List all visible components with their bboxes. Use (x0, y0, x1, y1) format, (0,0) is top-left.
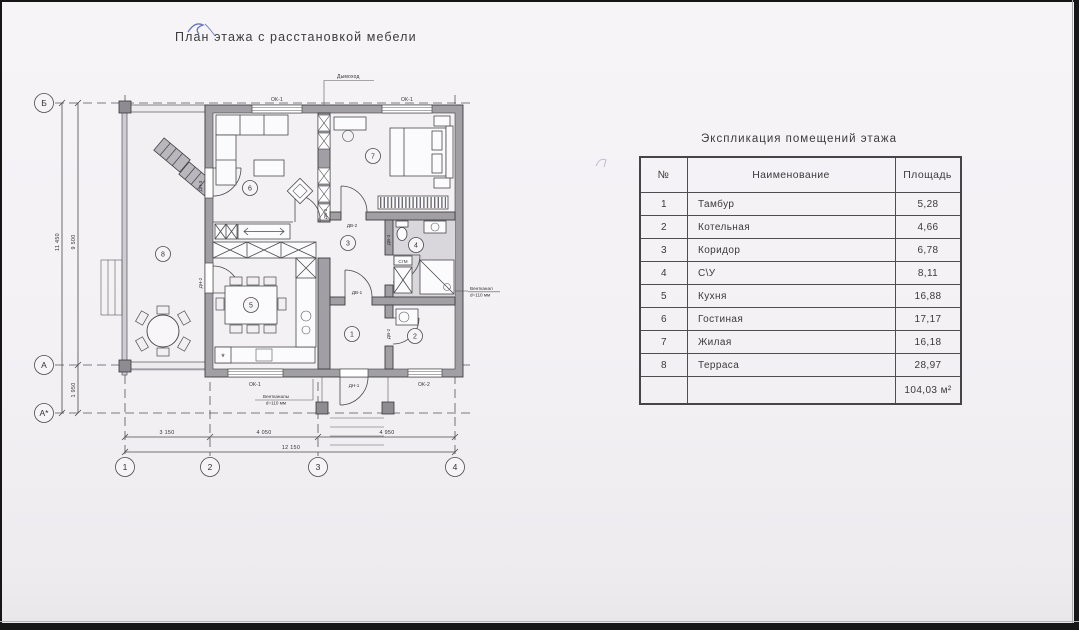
scan-edge-top (0, 0, 1079, 2)
total-empty-num (640, 377, 688, 405)
vent-left-label-2: d=110 мм (266, 401, 286, 406)
pen-scribble-2 (205, 24, 215, 36)
room-area: 8,11 (896, 262, 962, 285)
col-header-name: Наименование (688, 157, 896, 193)
room-num: 7 (640, 331, 688, 354)
room-number-2: 2 (413, 334, 417, 341)
door-label-dv2-living: ДВ-2 (323, 208, 328, 219)
room-num: 2 (640, 216, 688, 239)
explication: Экспликация помещений этажа № Наименован… (639, 133, 959, 405)
room-number-5: 5 (249, 303, 253, 310)
dim-left-2: 1 950 (71, 383, 77, 398)
col-header-area: Площадь (896, 157, 962, 193)
door-label-dv1: ДВ-1 (352, 290, 363, 295)
scan-edge-left (0, 0, 2, 630)
axis-row-a-star: А* (40, 408, 50, 418)
room-area: 16,88 (896, 285, 962, 308)
window-label-ok1-bottom: ОК-1 (249, 382, 261, 388)
scan-edge-line-right (1072, 0, 1073, 630)
room-num: 5 (640, 285, 688, 308)
room-name: Котельная (688, 216, 896, 239)
table-row: 7 Жилая 16,18 (640, 331, 961, 354)
room-area: 16,18 (896, 331, 962, 354)
room-num: 1 (640, 193, 688, 216)
room-area: 4,66 (896, 216, 962, 239)
vent-left-label-1: Вентканалы (263, 394, 289, 399)
door-label-dv2-bedroom: ДВ-2 (347, 223, 358, 228)
room-number-4: 4 (414, 243, 418, 250)
room-number-1: 1 (350, 332, 354, 339)
room-name: Терраса (688, 354, 896, 377)
col-header-num: № (640, 157, 688, 193)
scan-edge-right (1074, 0, 1079, 630)
table-row: 8 Терраса 28,97 (640, 354, 961, 377)
table-row: 6 Гостиная 17,17 (640, 308, 961, 331)
floor-plan: ОК-1 ОК-1 ОК-1 ОК-2 ДВ-1 ДВ-2 ДВ-2 ДВ-2 … (0, 0, 620, 500)
room-num: 6 (640, 308, 688, 331)
door-label-dn3-terrace: ДН-3 (198, 180, 203, 191)
scan-edge-bottom (0, 623, 1079, 630)
scanned-floor-plan-page: План этажа с расстановкой мебели (0, 0, 1079, 630)
window-label-ok1-top-right: ОК-1 (401, 97, 413, 103)
total-area: 104,03 м² (896, 377, 962, 405)
room-name: Кухня (688, 285, 896, 308)
window-label-ok1-top-left: ОК-1 (271, 97, 283, 103)
explication-table: № Наименование Площадь 1 Тамбур 5,28 2 К… (639, 156, 962, 405)
terrace (101, 101, 215, 375)
dim-bottom-total: 12 150 (282, 445, 300, 451)
boiler-room-equipment (396, 309, 418, 325)
table-header-row: № Наименование Площадь (640, 157, 961, 193)
door-label-dv3-bath: ДВ-3 (386, 234, 391, 245)
window-label-ok2-bottom: ОК-2 (418, 382, 430, 388)
dim-bottom-3: 4 950 (380, 430, 395, 436)
dim-left-1: 9 500 (71, 235, 77, 250)
room-num: 3 (640, 239, 688, 262)
table-row: 5 Кухня 16,88 (640, 285, 961, 308)
room-area: 17,17 (896, 308, 962, 331)
dim-bottom-1: 3 150 (160, 430, 175, 436)
door-label-dn2-terrace: ДН-2 (198, 277, 203, 288)
room-area: 6,78 (896, 239, 962, 262)
room-name: Тамбур (688, 193, 896, 216)
table-row: 3 Коридор 6,78 (640, 239, 961, 262)
room-area: 5,28 (896, 193, 962, 216)
room-name: Жилая (688, 331, 896, 354)
room-area: 28,97 (896, 354, 962, 377)
room-number-7: 7 (371, 154, 375, 161)
terrace-steps (101, 260, 122, 315)
explication-title: Экспликация помещений этажа (639, 133, 959, 145)
vent-right-label-2: d=110 мм (470, 293, 490, 298)
room-number-3: 3 (346, 241, 350, 248)
room-number-8: 8 (161, 252, 165, 259)
axis-col-2: 2 (208, 462, 213, 472)
table-row: 4 С\У 8,11 (640, 262, 961, 285)
door-label-dn1-entrance: ДН-1 (349, 383, 360, 388)
axis-col-4: 4 (453, 462, 458, 472)
floor-plan-area: ОК-1 ОК-1 ОК-1 ОК-2 ДВ-1 ДВ-2 ДВ-2 ДВ-2 … (0, 0, 620, 505)
axis-row-a: А (41, 360, 47, 370)
pen-mark (596, 159, 606, 167)
table-row: 2 Котельная 4,66 (640, 216, 961, 239)
room-num: 4 (640, 262, 688, 285)
axis-row-b: Б (41, 98, 47, 108)
pen-scribble (188, 24, 203, 34)
room-num: 8 (640, 354, 688, 377)
room-name: С\У (688, 262, 896, 285)
dim-bottom-2: 4 050 (257, 430, 272, 436)
table-row: 1 Тамбур 5,28 (640, 193, 961, 216)
room-number-6: 6 (248, 186, 252, 193)
scan-edge-line-bottom (0, 621, 1079, 622)
room-name: Гостиная (688, 308, 896, 331)
washer-label: СтМ (398, 259, 407, 264)
vent-right-label-1: Вентканал (470, 286, 493, 291)
chimney-label: Дымоход (337, 74, 360, 80)
door-label-dv2-boiler: ДВ-2 (386, 328, 391, 339)
axis-col-3: 3 (316, 462, 321, 472)
axis-col-1: 1 (123, 462, 128, 472)
table-total-row: 104,03 м² (640, 377, 961, 405)
total-empty-name (688, 377, 896, 405)
dim-left-total: 11 450 (55, 233, 61, 251)
room-name: Коридор (688, 239, 896, 262)
fridge-symbol: * (221, 352, 225, 362)
